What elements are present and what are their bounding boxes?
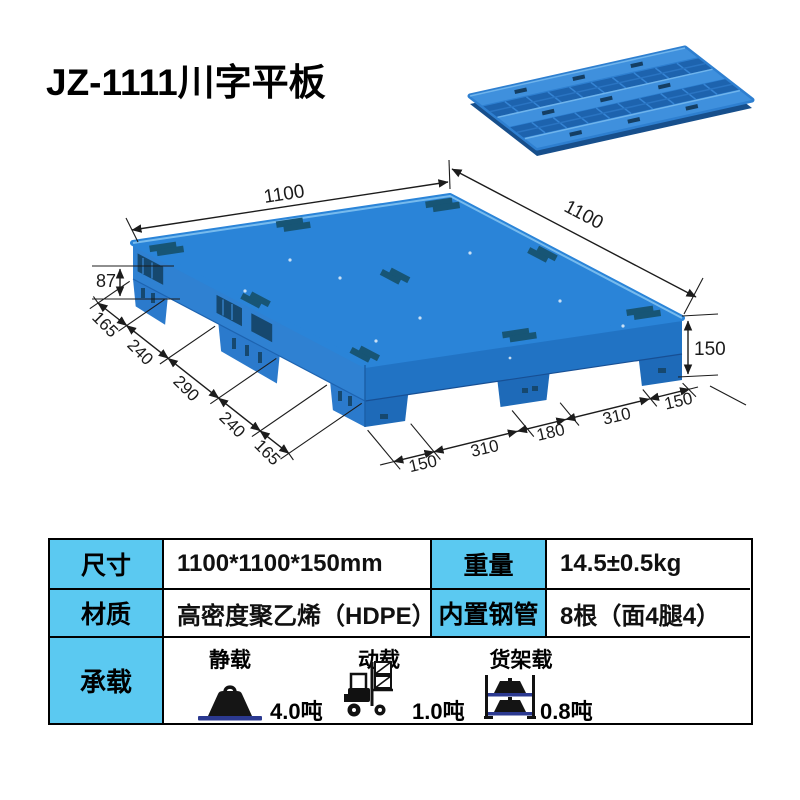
dim-label-bottom-2: 180 — [535, 420, 567, 445]
dim-label-left-0: 165 — [88, 308, 121, 341]
rack-icon — [484, 674, 536, 720]
dim-label-deck-thickness: 87 — [96, 271, 116, 291]
spec-header-material: 材质 — [50, 590, 164, 638]
product-title: JZ-1111川字平板 — [46, 52, 326, 106]
dim-label-bottom-3: 310 — [601, 404, 633, 429]
dim-label-top-right: 1100 — [561, 196, 607, 234]
pallet-diagram: 1100 1100 87 150 — [40, 158, 760, 538]
dim-label-left-4: 165 — [251, 436, 284, 469]
product-photo — [450, 18, 760, 168]
spec-table: 尺寸 1100*1100*150mm 重量 14.5±0.5kg 材质 高密度聚… — [48, 538, 753, 725]
weight-icon — [194, 683, 266, 723]
spec-header-weight: 重量 — [432, 540, 547, 590]
spec-header-steel-pipes: 内置钢管 — [432, 590, 547, 638]
load-capacity-cell: 静载 4.0吨 动载 1.0吨 货架载 — [164, 638, 750, 723]
spec-value-weight: 14.5±0.5kg — [547, 540, 750, 590]
spec-header-size: 尺寸 — [50, 540, 164, 590]
spec-header-load: 承载 — [50, 638, 164, 723]
dim-label-bottom-0: 150 — [407, 451, 439, 476]
spec-value-steel-pipes: 8根（面4腿4） — [547, 590, 750, 638]
static-load-value: 4.0吨 — [270, 694, 323, 723]
dim-label-bottom-4: 150 — [663, 389, 695, 414]
forklift-icon — [342, 660, 394, 720]
dim-label-right-height: 150 — [694, 339, 726, 360]
dim-label-left-3: 240 — [215, 408, 248, 441]
rack-load-value: 0.8吨 — [540, 694, 593, 723]
dim-label-left-2: 290 — [169, 372, 202, 405]
pallet-bottom-view — [470, 48, 752, 156]
dim-label-bottom-1: 310 — [469, 436, 501, 461]
pallet-isometric-body — [133, 196, 682, 427]
page: JZ-1111川字平板 — [0, 0, 800, 800]
rack-load-label: 货架载 — [469, 644, 573, 674]
spec-value-material: 高密度聚乙烯（HDPE） — [164, 590, 432, 638]
static-load-label: 静载 — [190, 644, 270, 674]
dim-label-left-1: 240 — [123, 335, 156, 368]
dynamic-load-value: 1.0吨 — [412, 694, 465, 723]
spec-value-size: 1100*1100*150mm — [164, 540, 432, 590]
